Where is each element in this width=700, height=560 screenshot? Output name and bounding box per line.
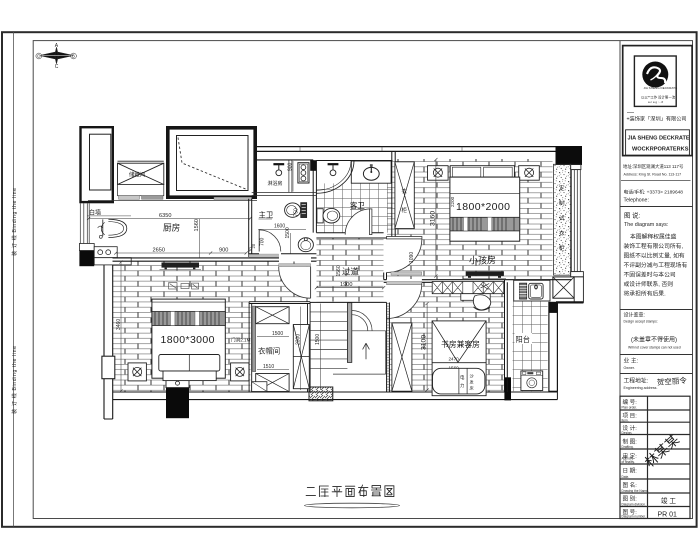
svg-text:Item.: Item.	[622, 418, 629, 422]
svg-text:6350: 6350	[159, 213, 171, 219]
svg-text:Date.: Date.	[622, 475, 630, 479]
svg-text:阳台: 阳台	[516, 335, 530, 344]
svg-text:以以**工作 设计第一流: 以以**工作 设计第一流	[641, 94, 676, 99]
svg-text:主卫: 主卫	[259, 211, 274, 220]
svg-text:图 说:: 图 说:	[624, 211, 641, 220]
svg-text:700: 700	[259, 237, 265, 246]
svg-text:图 别:: 图 别:	[623, 495, 638, 503]
svg-text:750: 750	[293, 208, 299, 217]
svg-text:JIA SHENG DECKRATE: JIA SHENG DECKRATE	[628, 136, 690, 142]
svg-text:3100: 3100	[421, 335, 428, 350]
svg-text:Drafting.: Drafting.	[622, 445, 634, 449]
svg-text:PR 01: PR 01	[658, 512, 678, 519]
svg-text:小孩房: 小孩房	[469, 255, 496, 266]
svg-text:WOCKRPORATERKS: WOCKRPORATERKS	[632, 147, 689, 153]
svg-text:1500: 1500	[272, 331, 283, 337]
svg-text:装饰工程有限公司所有,: 装饰工程有限公司所有,	[624, 242, 684, 250]
svg-text:2300: 2300	[295, 334, 301, 345]
svg-text:装 订 线 Binding the line: 装 订 线 Binding the line	[10, 187, 18, 256]
svg-text:厨房: 厨房	[163, 222, 180, 233]
svg-text:Address: King St. Road No. 11: Address: King St. Road No. 113-117	[624, 173, 682, 177]
svg-text:设计鉴章:: 设计鉴章:	[624, 312, 645, 319]
svg-text:图纸不以比例丈量, 如有: 图纸不以比例丈量, 如有	[624, 252, 685, 260]
svg-text:2200: 2200	[450, 196, 455, 207]
svg-text:1510: 1510	[263, 364, 274, 370]
svg-text:1900: 1900	[340, 282, 352, 288]
svg-text:过道: 过道	[342, 267, 359, 277]
svg-text:20: 20	[251, 243, 256, 248]
svg-text:3160: 3160	[429, 211, 436, 226]
svg-text:柜: 柜	[559, 244, 565, 252]
svg-text:日 期:: 日 期:	[623, 468, 638, 475]
svg-text:本图解释权属佳盛: 本图解释权属佳盛	[630, 233, 677, 241]
svg-text:Drawing the Name.: Drawing the Name.	[622, 489, 649, 493]
svg-text:白墙: 白墙	[89, 209, 101, 217]
svg-text:+装饰家「深圳」有限公司: +装饰家「深圳」有限公司	[627, 115, 687, 123]
svg-text:Diagram division.: Diagram division.	[622, 503, 647, 507]
svg-text:淋浴房: 淋浴房	[268, 180, 283, 187]
svg-text:力: 力	[460, 382, 464, 389]
svg-text:或设计师联系, 否则: 或设计师联系, 否则	[624, 280, 674, 288]
svg-text:1600: 1600	[274, 224, 285, 230]
svg-text:工程地址:: 工程地址:	[624, 377, 649, 385]
svg-text:书房兼客房: 书房兼客房	[441, 339, 480, 349]
svg-text:JIA SHENG DECKRATE: JIA SHENG DECKRATE	[644, 86, 678, 90]
svg-text:地址:深圳区观澜大道113 117号: 地址:深圳区观澜大道113 117号	[623, 163, 684, 170]
svg-text:2650: 2650	[153, 248, 165, 254]
svg-text:电: 电	[460, 374, 465, 380]
svg-text:2470: 2470	[449, 357, 460, 362]
svg-text:衣: 衣	[559, 229, 565, 237]
svg-text:衣帽间: 衣帽间	[258, 347, 280, 356]
svg-text:B: B	[72, 54, 75, 59]
svg-text:1500: 1500	[285, 227, 291, 238]
svg-text:柜: 柜	[402, 206, 408, 214]
svg-text:The diagram says:: The diagram says:	[624, 222, 668, 228]
svg-text:业 主:: 业 主:	[624, 357, 639, 365]
svg-text:装 订 线 Binding the line: 装 订 线 Binding the line	[10, 345, 18, 414]
svg-text:电话/手机: +3373> 2189648: 电话/手机: +3373> 2189648	[624, 189, 684, 196]
svg-text:Engineering address.: Engineering address.	[624, 386, 658, 390]
svg-text:Design accept stamps:: Design accept stamps:	[624, 320, 658, 324]
svg-text:1560: 1560	[336, 265, 342, 276]
svg-text:Owner.: Owner.	[624, 366, 635, 370]
svg-text:of finality.: of finality.	[622, 460, 635, 464]
svg-text:不固误差时与本公司: 不固误差时与本公司	[624, 271, 676, 279]
svg-text:3460: 3460	[116, 319, 122, 330]
svg-text:制: 制	[559, 199, 565, 207]
svg-text:1800*2000: 1800*2000	[456, 201, 510, 213]
svg-text:试: 试	[559, 214, 565, 222]
svg-text:图 名:: 图 名:	[623, 481, 638, 489]
svg-text:1800*3000: 1800*3000	[161, 334, 215, 346]
svg-text:客卫: 客卫	[350, 201, 365, 210]
svg-text:1500: 1500	[315, 334, 321, 345]
svg-text:900: 900	[288, 162, 294, 171]
svg-text:a c a g : - #: a c a g : - #	[648, 100, 663, 104]
svg-text:衣: 衣	[402, 187, 408, 195]
svg-text:Telephone:: Telephone:	[624, 198, 649, 204]
svg-text:Diagram number.: Diagram number.	[622, 515, 647, 519]
svg-text:Plan order.: Plan order.	[622, 406, 638, 410]
svg-text:门洞2.1M: 门洞2.1M	[231, 337, 251, 344]
svg-text:储藏间: 储藏间	[129, 171, 145, 179]
svg-text:不评副分减与工程现场有: 不评副分减与工程现场有	[624, 261, 688, 269]
svg-text:900: 900	[219, 248, 228, 254]
svg-text:定: 定	[559, 184, 565, 192]
svg-text:Will not cover stamps can not: Will not cover stamps can not used	[628, 346, 681, 350]
svg-text:C: C	[55, 64, 59, 70]
svg-text:1560: 1560	[194, 219, 200, 231]
svg-text:将承担所有后果.: 将承担所有后果.	[624, 290, 667, 298]
svg-text:1090: 1090	[409, 252, 415, 263]
svg-text:(未盖章不得使用): (未盖章不得使用)	[631, 336, 677, 344]
svg-text:Design.: Design.	[622, 431, 633, 435]
svg-text:竣 工: 竣 工	[661, 496, 676, 505]
